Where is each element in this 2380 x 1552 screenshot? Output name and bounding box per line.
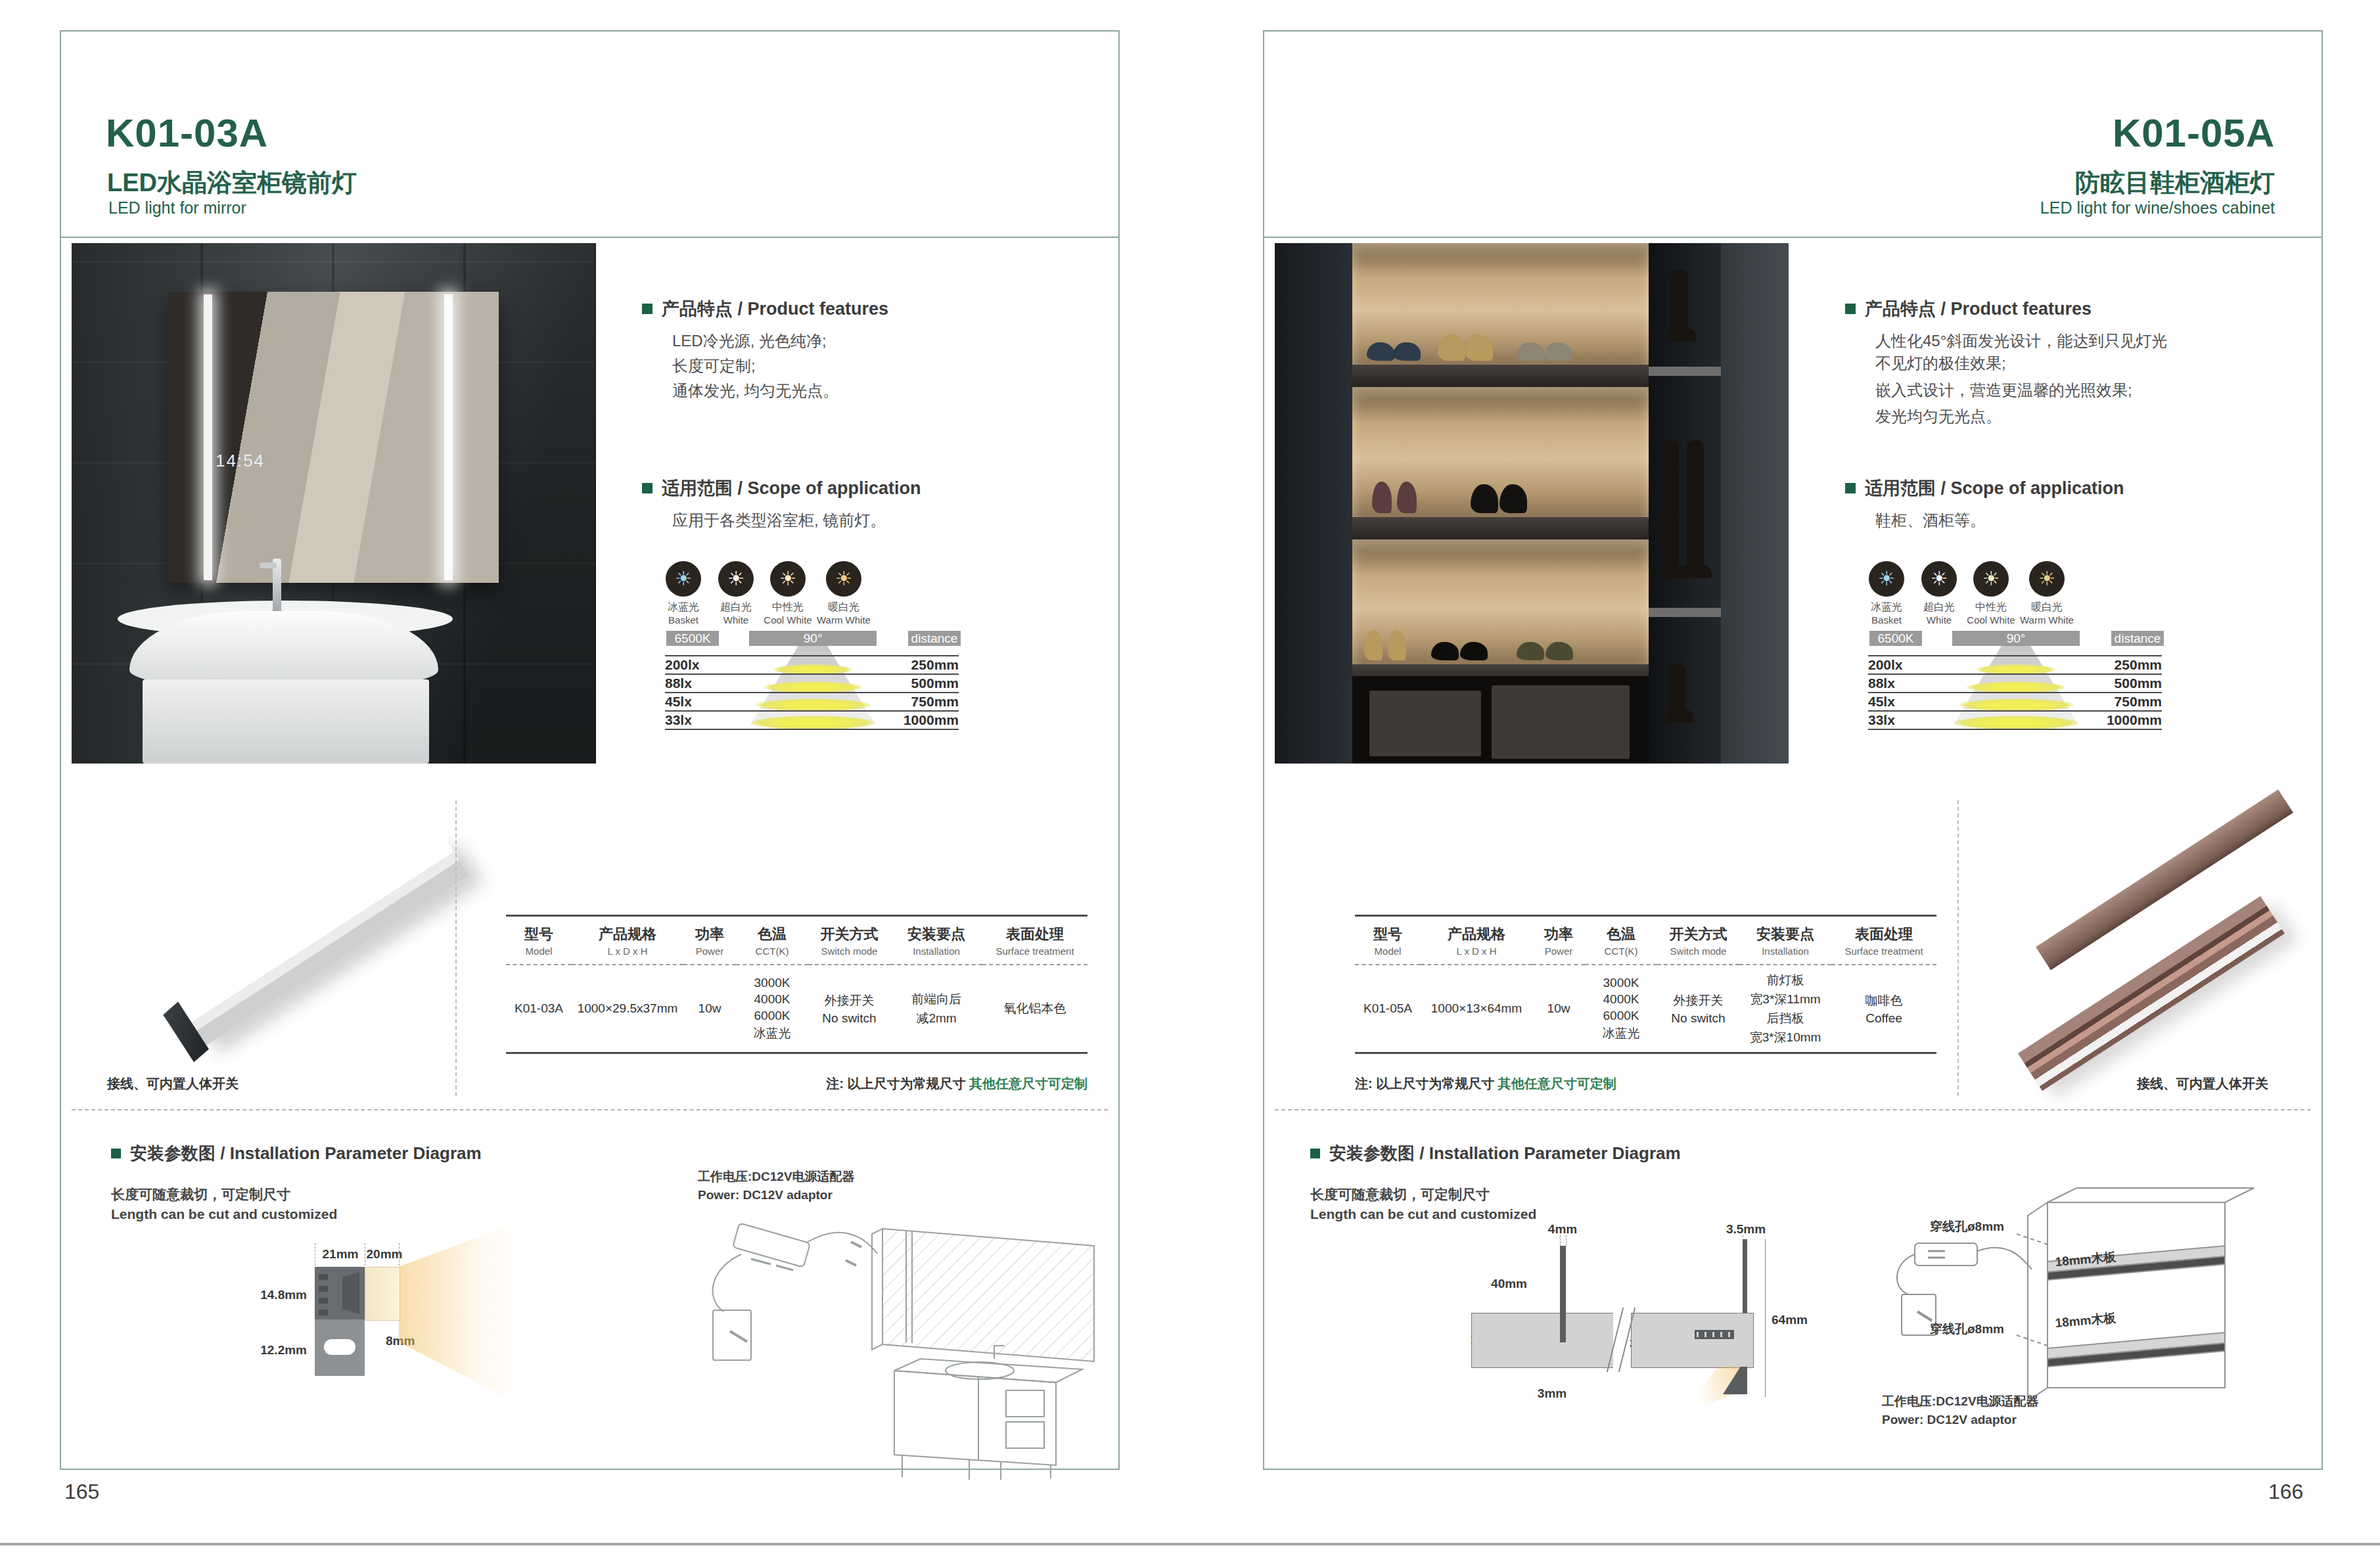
feature-line: LED冷光源, 光色纯净;	[672, 331, 827, 352]
page-title: K01-05A	[2113, 110, 2275, 156]
beam-row: 88lx500mm	[1868, 675, 2162, 693]
col-header-surface: 表面处理Surface treatment	[982, 917, 1087, 965]
page-right: K01-05A 防眩目鞋柜酒柜灯 LED light for wine/shoe…	[1263, 30, 2323, 1470]
beam-row: 88lx500mm	[665, 675, 959, 693]
length-note-cn: 长度可随意裁切，可定制尺寸	[1310, 1185, 1490, 1204]
product-title-en: LED light for mirror	[108, 198, 246, 217]
col-header-power: 功率Power	[683, 917, 736, 965]
sun-icon: ☀	[1869, 561, 1904, 597]
power-note-en: Power: DC12V adaptor	[1882, 1413, 2017, 1427]
cell-switch: 外接开关No switch	[808, 965, 890, 1052]
sun-icon: ☀	[1921, 561, 1957, 597]
length-note-en: Length can be cut and customized	[1310, 1206, 1536, 1222]
installation-heading: 安装参数图 / Installation Parameter Diagram	[111, 1142, 482, 1165]
page-number-right: 166	[2268, 1480, 2303, 1504]
size-note: 注: 以上尺寸为常规尺寸 其他任意尺寸可定制	[1355, 1075, 1616, 1093]
feature-line: 人性化45°斜面发光设计，能达到只见灯光	[1875, 331, 2167, 352]
lit-shelf	[1352, 387, 1649, 517]
beam-row: 200lx250mm	[1868, 655, 2162, 675]
sun-icon: ☀	[770, 561, 806, 597]
beam-row: 45lx750mm	[1868, 693, 2162, 712]
product-photo-shoe-cabinet	[1275, 243, 1789, 764]
section-divider-dashed	[72, 1109, 1108, 1110]
front-light-board	[1560, 1246, 1566, 1342]
beam-angle-badge: 90°	[749, 631, 877, 646]
dim-back-tab: 3.5mm	[1720, 1222, 1772, 1237]
square-bullet-icon	[642, 304, 652, 314]
square-bullet-icon	[111, 1149, 121, 1158]
cell-installation: 前灯板宽3*深11mm 后挡板宽3*深10mm	[1739, 965, 1831, 1052]
mount-slot	[324, 1339, 355, 1355]
footer-rule	[0, 1543, 2380, 1545]
section-divider-dashed	[455, 800, 457, 1096]
col-header-installation: 安装要点Installation	[1739, 917, 1831, 965]
wire-hole-label: 穿线孔ø8mm	[1930, 1321, 2004, 1338]
profile-product-render	[2007, 807, 2302, 1089]
features-heading: 产品特点 / Product features	[642, 297, 888, 321]
dim-front-tab: 4mm	[1536, 1222, 1589, 1237]
square-bullet-icon	[1310, 1149, 1320, 1158]
wire-hole-label: 穿线孔ø8mm	[1930, 1218, 2004, 1235]
sun-icon: ☀	[718, 561, 754, 597]
spec-table: 型号Model K01-05A 产品规格L x D x H 1000×13×64…	[1355, 915, 1936, 1054]
vanity-cabinet	[143, 679, 429, 764]
dim-light-width: 20mm	[345, 1247, 424, 1262]
cell-surface: 咖啡色Coffee	[1831, 965, 1936, 1052]
profile-product-render	[160, 807, 462, 1089]
cct-badge: 6500K	[1869, 631, 1922, 646]
power-note-cn: 工作电压:DC12V电源适配器	[1882, 1393, 2039, 1410]
lit-shelf	[1352, 243, 1649, 365]
feature-line: 长度可定制;	[672, 355, 756, 377]
sun-icon: ☀	[2029, 561, 2065, 597]
distance-badge: distance	[908, 631, 961, 646]
dim-flange-height: 12.2mm	[228, 1343, 307, 1358]
col-header-cct: 色温CCT(K)	[1585, 917, 1657, 965]
length-note-cn: 长度可随意裁切，可定制尺寸	[111, 1185, 290, 1204]
cabinet-install-drawing	[1882, 1177, 2276, 1394]
page-number-left: 165	[64, 1480, 99, 1504]
back-panel	[1743, 1239, 1747, 1313]
col-header-cct: 色温CCT(K)	[736, 917, 808, 965]
cell-cct: 3000K4000K 6000K冰蓝光	[1585, 965, 1657, 1052]
cell-size: 1000×13×64mm	[1421, 965, 1532, 1052]
col-header-installation: 安装要点Installation	[890, 917, 982, 965]
sun-icon: ☀	[666, 561, 701, 597]
dim-tab-height: 40mm	[1481, 1277, 1527, 1291]
led-strip-left	[204, 294, 212, 580]
product-title-cn: LED水晶浴室柜镜前灯	[107, 166, 357, 200]
beam-angle-badge: 90°	[1952, 631, 2080, 646]
col-header-switch: 开关方式Switch mode	[1657, 917, 1739, 965]
profile-body	[315, 1267, 365, 1319]
cell-power: 10w	[683, 965, 736, 1052]
col-header-size: 产品规格L x D x H	[572, 917, 683, 965]
light-window	[365, 1267, 400, 1321]
cell-power: 10w	[1532, 965, 1585, 1052]
square-bullet-icon	[1845, 304, 1856, 314]
product-title-en: LED light for wine/shoes cabinet	[2040, 198, 2275, 217]
spec-table: 型号Model K01-03A 产品规格L x D x H 1000×29.5x…	[506, 915, 1087, 1054]
wood-board-left	[1471, 1313, 1614, 1368]
beam-distance-chart: 200lx250mm 88lx500mm 45lx750mm 33lx1000m…	[1868, 655, 2162, 730]
cell-switch: 外接开关No switch	[1657, 965, 1739, 1052]
cabinet-drawers	[1352, 676, 1649, 764]
break-gap	[1613, 1308, 1630, 1372]
cabinet-frame	[1721, 243, 1789, 764]
cell-model: K01-05A	[1355, 965, 1421, 1052]
faucet	[273, 559, 281, 614]
page-left: K01-03A LED水晶浴室柜镜前灯 LED light for mirror…	[60, 30, 1120, 1470]
square-bullet-icon	[642, 483, 652, 493]
cabinet-side-panel	[1275, 243, 1352, 764]
led-strip-right	[444, 294, 453, 580]
distance-badge: distance	[2111, 631, 2164, 646]
power-note-cn: 工作电压:DC12V电源适配器	[698, 1168, 855, 1185]
cell-installation: 前端向后减2mm	[890, 965, 982, 1052]
mirror-install-drawing	[685, 1205, 1106, 1481]
header-divider	[1264, 237, 2322, 238]
section-divider-dashed	[1957, 800, 1959, 1096]
wood-board-right	[1631, 1313, 1754, 1368]
beam-distance-chart: 200lx250mm 88lx500mm 45lx750mm 33lx1000m…	[665, 655, 959, 730]
feature-line: 不见灯的极佳效果;	[1875, 353, 2006, 374]
boot-column	[1649, 243, 1721, 764]
scope-heading: 适用范围 / Scope of application	[1845, 476, 2124, 500]
mirror-clock: 14:54	[216, 451, 265, 471]
cct-badge: 6500K	[666, 631, 719, 646]
scope-text: 鞋柜、酒柜等。	[1875, 510, 1986, 531]
dim-total-height: 64mm	[1772, 1313, 1811, 1327]
page-title: K01-03A	[106, 110, 268, 156]
length-note-en: Length can be cut and customized	[111, 1206, 337, 1222]
power-note-en: Power: DC12V adaptor	[698, 1188, 833, 1202]
back-slot	[1695, 1330, 1734, 1339]
feature-line: 嵌入式设计，营造更温馨的光照效果;	[1875, 380, 2132, 401]
col-header-size: 产品规格L x D x H	[1421, 917, 1532, 965]
led-mirror: 14:54	[168, 292, 499, 583]
installation-heading: 安装参数图 / Installation Parameter Diagram	[1310, 1142, 1681, 1165]
cross-section-diagram: 4mm 3.5mm 40mm 18mm木板 10mm 3mm 11mm 3mm …	[1461, 1221, 1803, 1418]
feature-line: 发光均匀无光点。	[1875, 406, 2002, 427]
col-header-power: 功率Power	[1532, 917, 1585, 965]
col-header-model: 型号Model	[1355, 917, 1421, 965]
end-cap	[163, 1002, 209, 1062]
lit-shelf	[1352, 539, 1649, 664]
col-header-surface: 表面处理Surface treatment	[1831, 917, 1936, 965]
wiring-note: 接线、可内置人体开关	[2137, 1075, 2268, 1093]
scope-text: 应用于各类型浴室柜, 镜前灯。	[672, 510, 886, 531]
profile-flange	[315, 1319, 365, 1376]
square-bullet-icon	[1845, 483, 1856, 493]
cell-cct: 3000K4000K 6000K冰蓝光	[736, 965, 808, 1052]
light-mode-warm-white: ☀ 暖白光 Warm White	[808, 561, 880, 626]
scope-heading: 适用范围 / Scope of application	[642, 476, 921, 500]
sun-icon: ☀	[826, 561, 861, 597]
cell-surface: 氧化铝本色	[982, 965, 1087, 1052]
size-note: 注: 以上尺寸为常规尺寸 其他任意尺寸可定制	[826, 1075, 1087, 1093]
beam-row: 45lx750mm	[665, 693, 959, 712]
light-mode-warm-white: ☀ 暖白光 Warm White	[2011, 561, 2083, 626]
section-divider-dashed	[1275, 1109, 2311, 1110]
catalog-spread: K01-03A LED水晶浴室柜镜前灯 LED light for mirror…	[0, 0, 2380, 1552]
product-title-cn: 防眩目鞋柜酒柜灯	[2075, 166, 2275, 200]
header-divider	[61, 237, 1118, 238]
col-header-model: 型号Model	[506, 917, 572, 965]
features-heading: 产品特点 / Product features	[1845, 297, 2092, 321]
col-header-switch: 开关方式Switch mode	[808, 917, 890, 965]
cell-model: K01-03A	[506, 965, 572, 1052]
beam-row: 200lx250mm	[665, 655, 959, 675]
dim-body-height: 14.8mm	[228, 1288, 307, 1302]
wash-basin	[129, 611, 438, 689]
beam-row: 33lx1000mm	[665, 712, 959, 730]
cross-section-diagram: 21mm 20mm 14.8mm 12.2mm 8mm	[219, 1221, 521, 1405]
beam-row: 33lx1000mm	[1868, 712, 2162, 730]
product-photo-bathroom: 14:54	[72, 243, 596, 764]
cell-size: 1000×29.5x37mm	[572, 965, 683, 1052]
sun-icon: ☀	[1973, 561, 2009, 597]
wiring-note: 接线、可内置人体开关	[107, 1075, 239, 1093]
dim-slot-width: 3mm	[1526, 1386, 1578, 1401]
feature-line: 通体发光, 均匀无光点。	[672, 380, 838, 401]
